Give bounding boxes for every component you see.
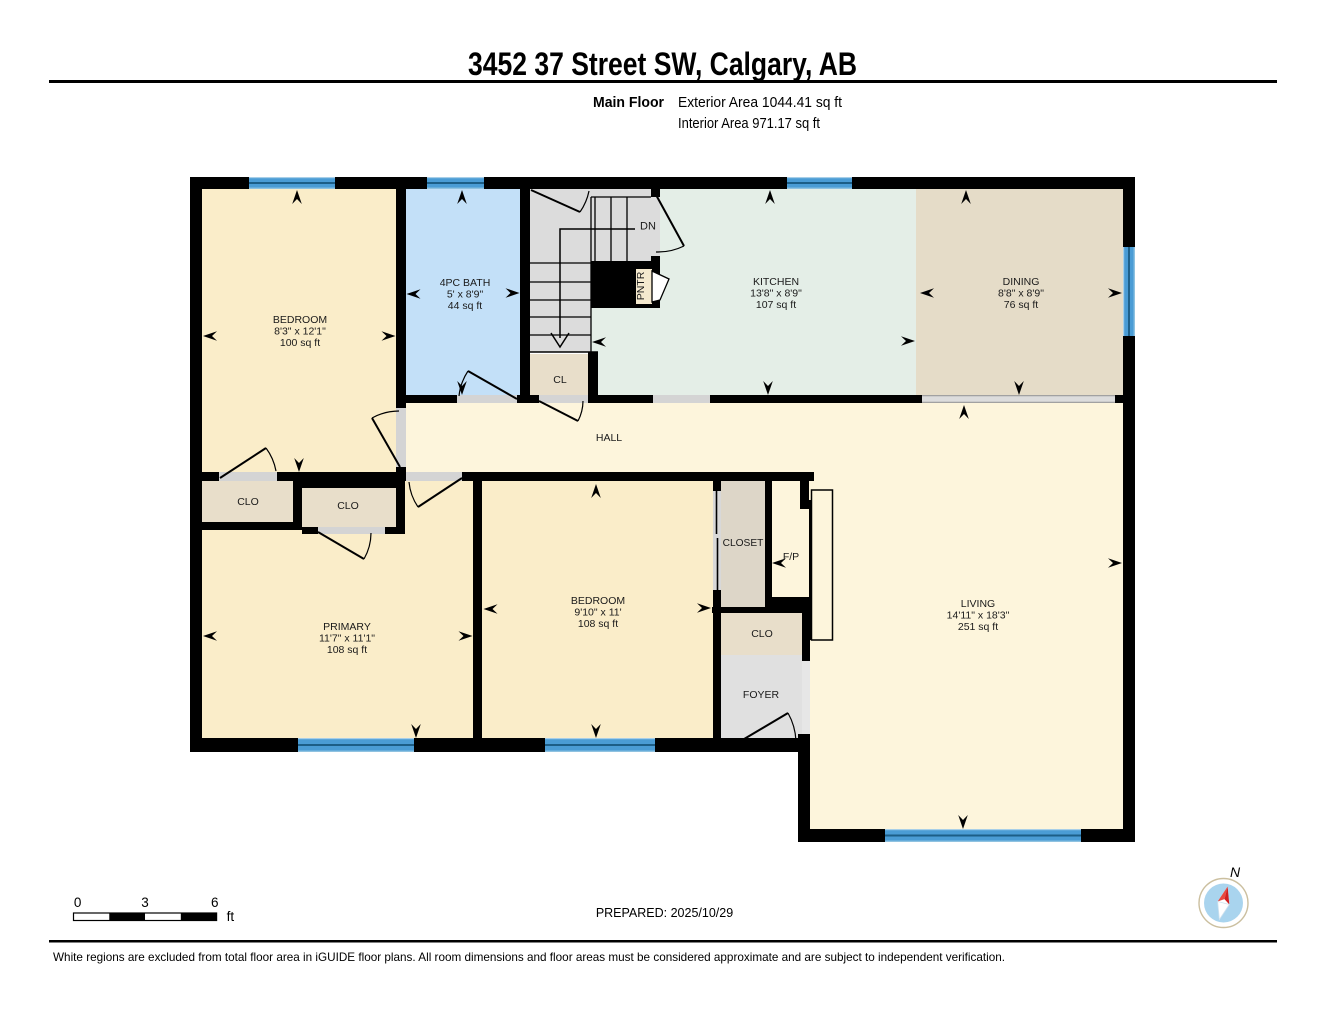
svg-text:8'3" x 12'1": 8'3" x 12'1"	[274, 326, 326, 338]
svg-text:76 sq ft: 76 sq ft	[1004, 299, 1039, 311]
svg-text:5' x 8'9": 5' x 8'9"	[447, 289, 484, 301]
svg-text:108 sq ft: 108 sq ft	[578, 618, 618, 630]
svg-text:3: 3	[141, 895, 149, 910]
svg-text:Main Floor: Main Floor	[593, 95, 664, 111]
svg-text:CLO: CLO	[337, 500, 359, 512]
svg-text:Interior Area 971.17 sq ft: Interior Area 971.17 sq ft	[678, 116, 820, 132]
svg-text:PRIMARY: PRIMARY	[323, 621, 371, 633]
svg-text:3452 37 Street SW, Calgary, AB: 3452 37 Street SW, Calgary, AB	[468, 46, 857, 82]
svg-text:HALL: HALL	[596, 432, 622, 444]
svg-text:PREPARED: 2025/10/29: PREPARED: 2025/10/29	[596, 906, 733, 920]
svg-text:8'8" x 8'9": 8'8" x 8'9"	[998, 288, 1044, 300]
svg-text:6: 6	[211, 895, 219, 910]
svg-text:9'10" x 11': 9'10" x 11'	[574, 607, 621, 619]
svg-text:KITCHEN: KITCHEN	[753, 276, 799, 288]
svg-text:F/P: F/P	[783, 551, 799, 563]
svg-text:BEDROOM: BEDROOM	[571, 595, 625, 607]
svg-text:11'7" x 11'1": 11'7" x 11'1"	[319, 633, 375, 645]
svg-text:107 sq ft: 107 sq ft	[756, 299, 796, 311]
svg-text:251 sq ft: 251 sq ft	[958, 621, 998, 633]
svg-text:CLOSET: CLOSET	[723, 538, 764, 549]
svg-text:Exterior Area 1044.41 sq ft: Exterior Area 1044.41 sq ft	[678, 95, 842, 111]
svg-text:White regions are excluded fro: White regions are excluded from total fl…	[53, 950, 1005, 964]
svg-text:DN: DN	[640, 221, 656, 233]
svg-text:CLO: CLO	[751, 628, 773, 640]
svg-text:PNTR: PNTR	[635, 271, 647, 300]
svg-text:4PC BATH: 4PC BATH	[440, 277, 491, 289]
svg-text:N: N	[1230, 864, 1241, 880]
svg-text:ft: ft	[227, 909, 235, 924]
svg-text:FOYER: FOYER	[743, 689, 780, 701]
svg-text:DINING: DINING	[1003, 276, 1040, 288]
svg-text:44 sq ft: 44 sq ft	[448, 300, 483, 312]
svg-text:BEDROOM: BEDROOM	[273, 314, 327, 326]
svg-text:100 sq ft: 100 sq ft	[280, 337, 320, 349]
svg-text:0: 0	[74, 895, 82, 910]
svg-text:13'8" x 8'9": 13'8" x 8'9"	[750, 288, 802, 300]
svg-text:CLO: CLO	[237, 496, 259, 508]
svg-text:LIVING: LIVING	[961, 598, 995, 610]
svg-text:14'11" x 18'3": 14'11" x 18'3"	[947, 610, 1010, 622]
svg-text:CL: CL	[553, 374, 567, 386]
svg-text:108 sq ft: 108 sq ft	[327, 644, 367, 656]
